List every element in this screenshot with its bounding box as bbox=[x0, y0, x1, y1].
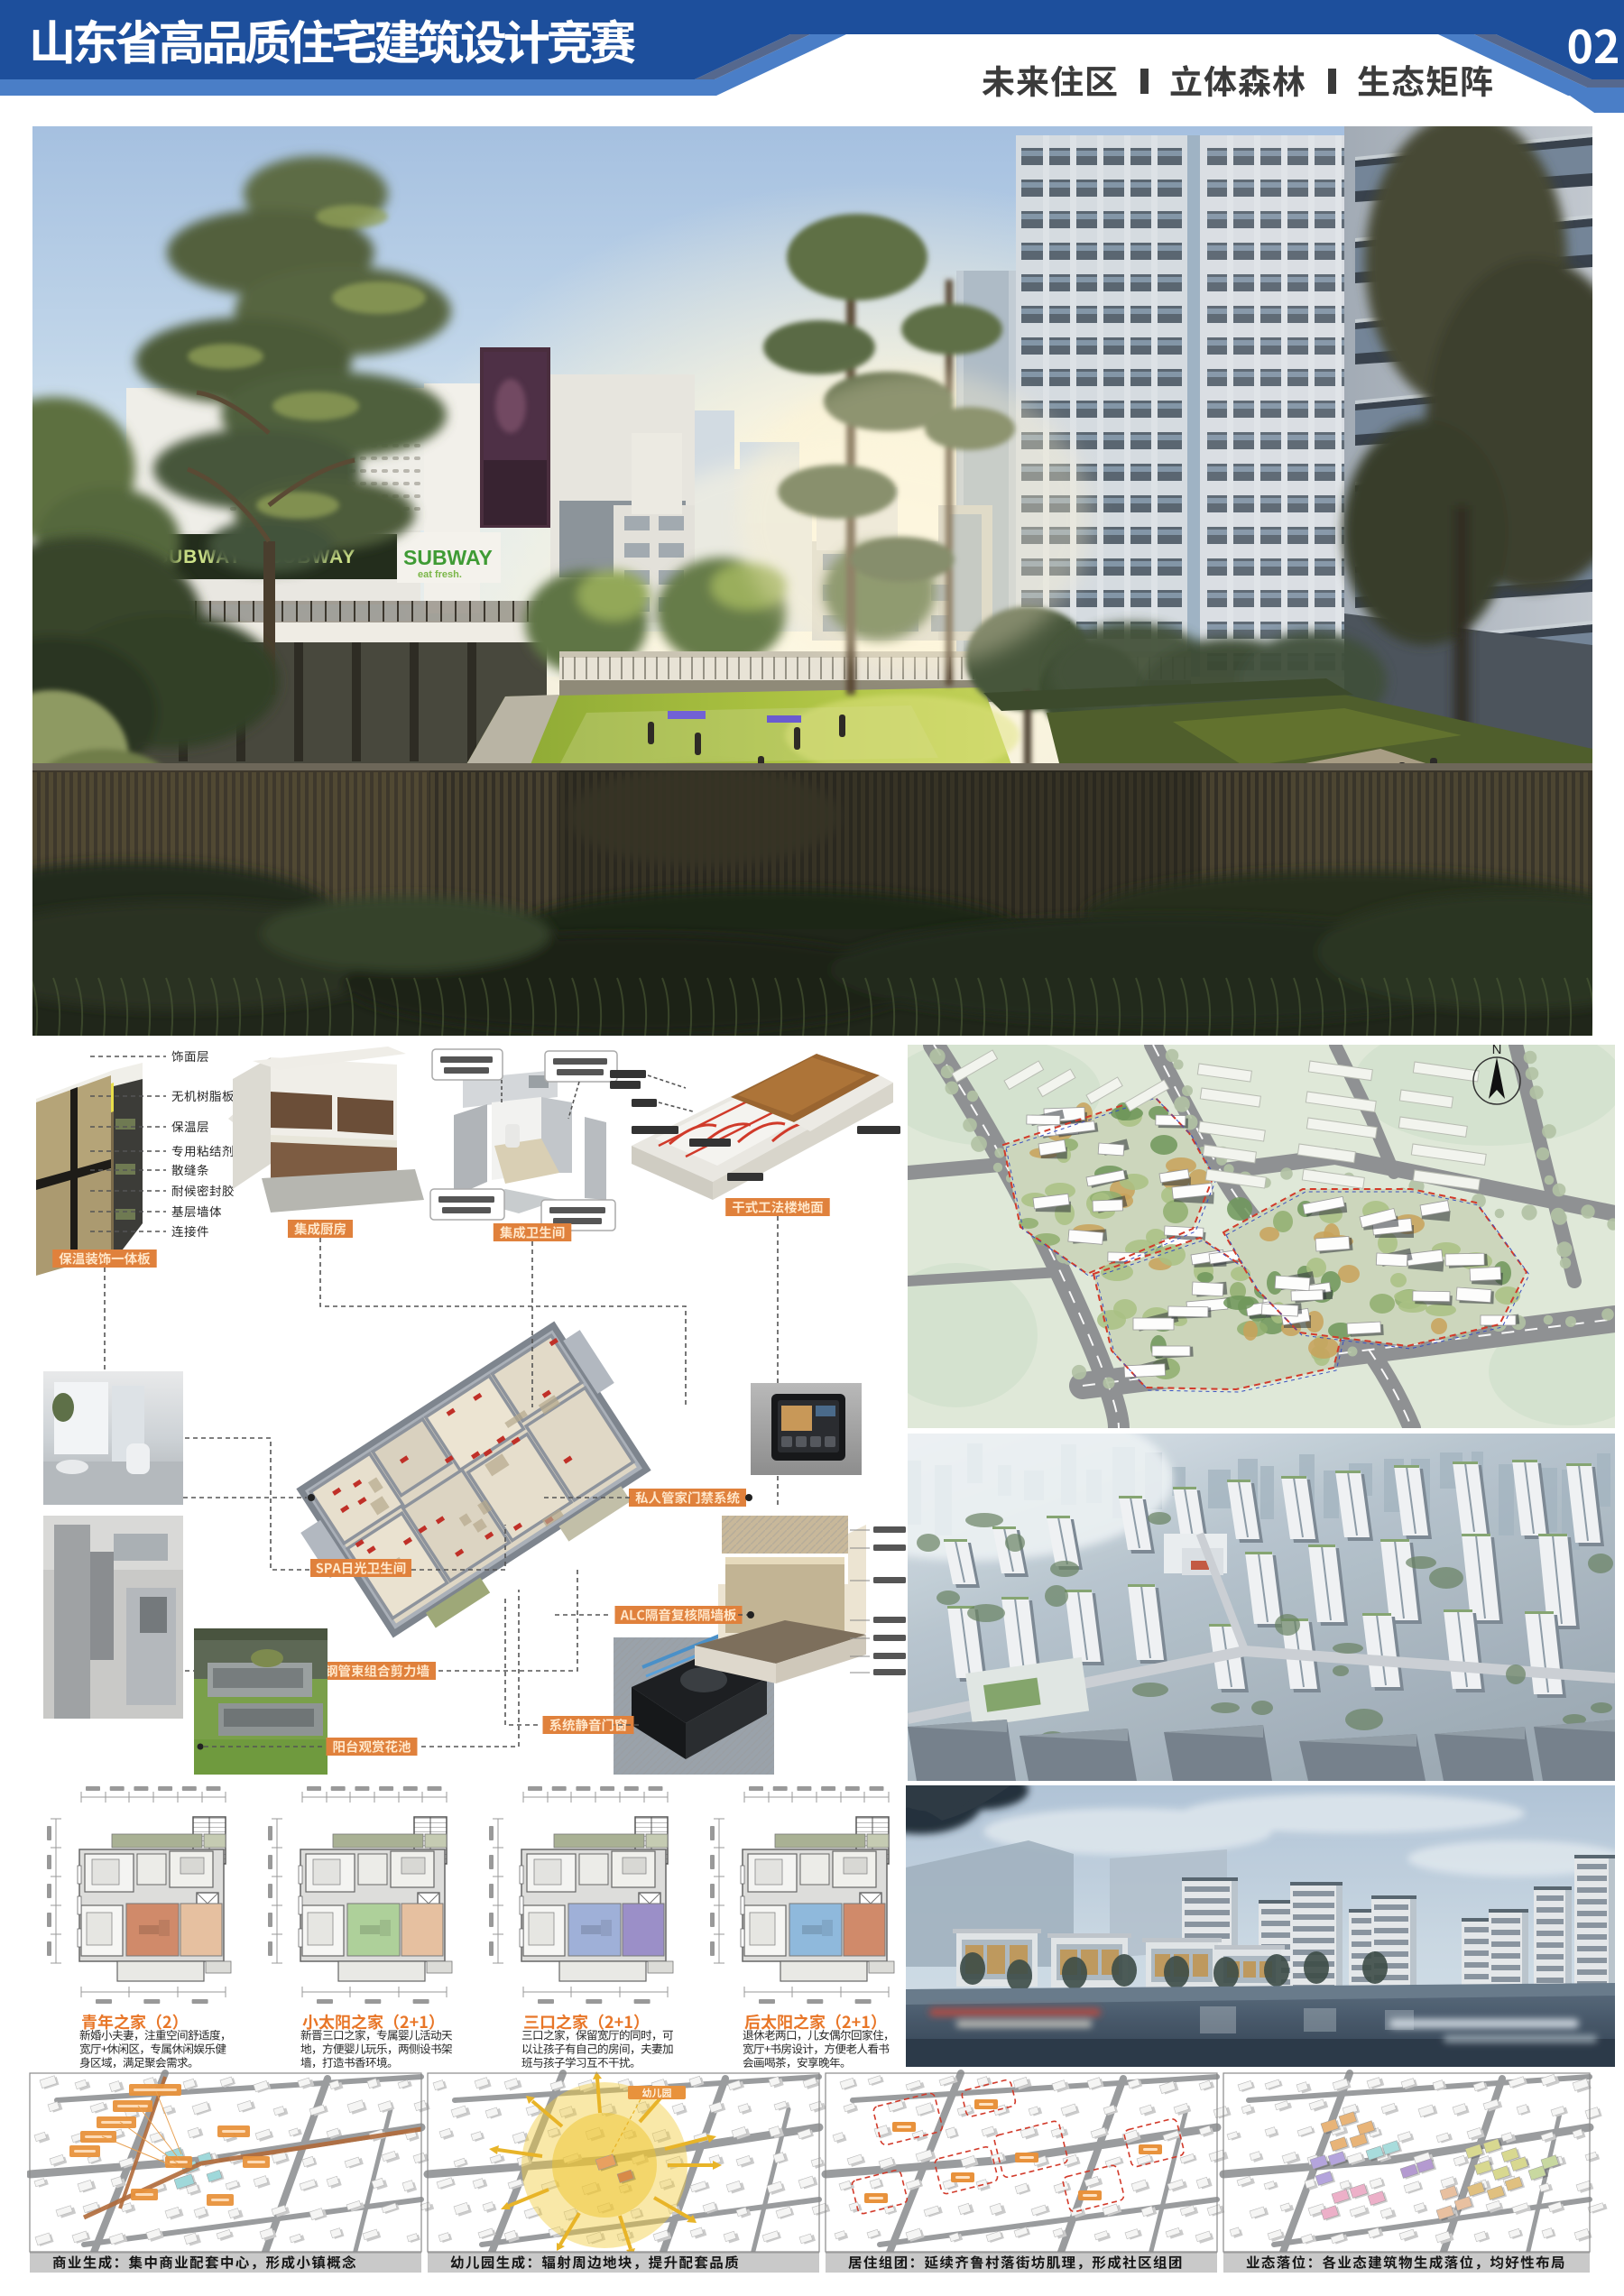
svg-text:eat fresh.: eat fresh. bbox=[418, 569, 462, 580]
svg-text:SUBWAY: SUBWAY bbox=[403, 546, 493, 569]
svg-text:N: N bbox=[1492, 1045, 1502, 1057]
